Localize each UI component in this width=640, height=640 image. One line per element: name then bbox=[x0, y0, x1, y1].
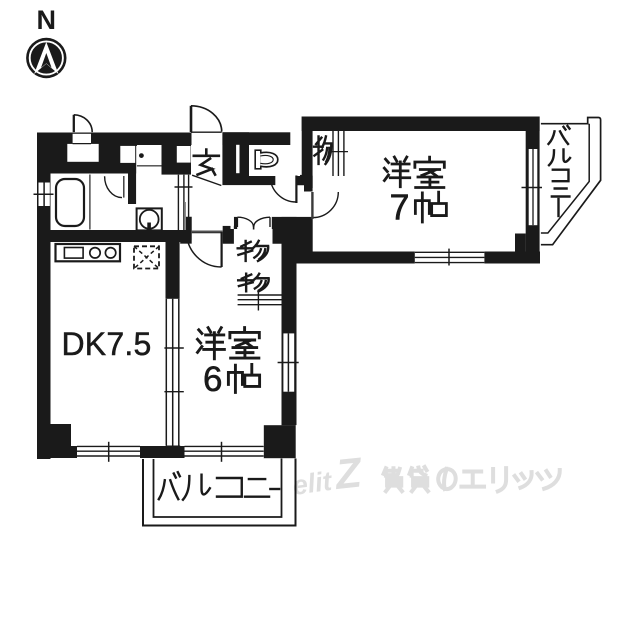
svg-text:DK7.5: DK7.5 bbox=[62, 326, 152, 362]
svg-text:7: 7 bbox=[390, 187, 410, 228]
svg-text:N: N bbox=[37, 5, 57, 35]
svg-text:elit: elit bbox=[291, 466, 335, 501]
svg-text:6: 6 bbox=[203, 360, 222, 399]
